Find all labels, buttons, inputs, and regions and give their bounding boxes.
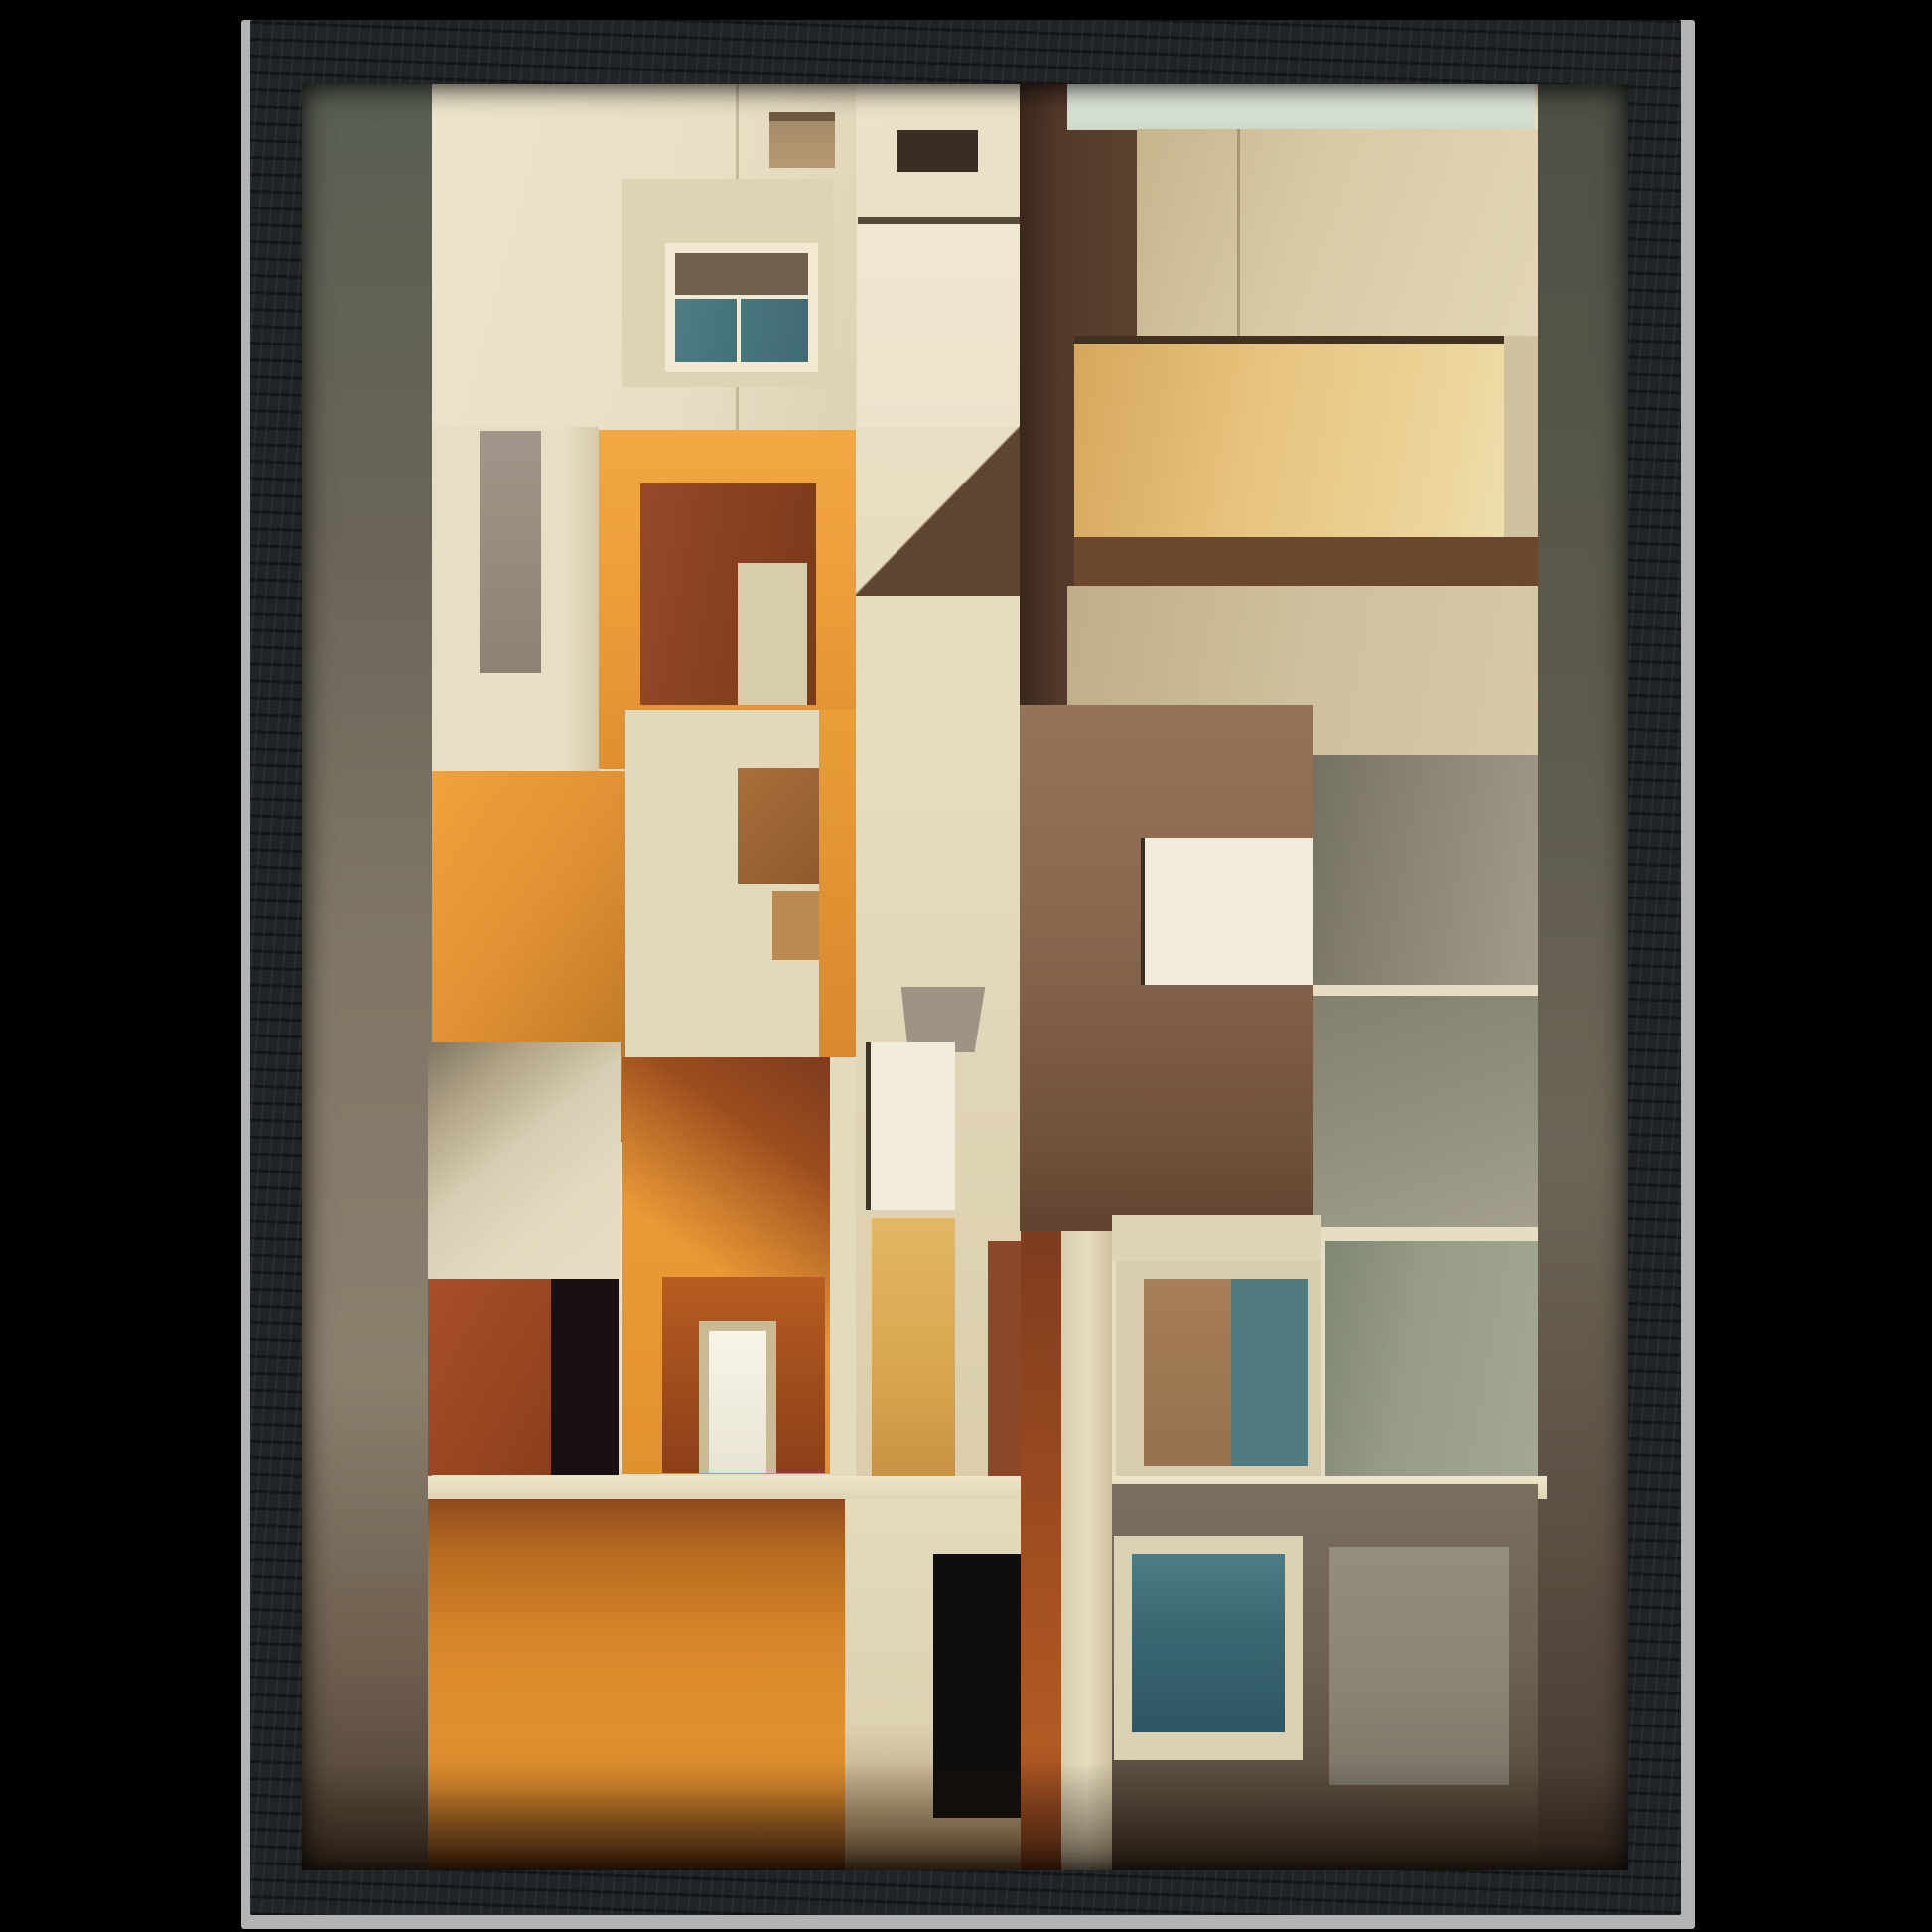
block-yellow-panel [1074,344,1504,537]
block-window-transom [675,253,808,295]
block-blinds-pane-teal [1231,1279,1308,1466]
print [302,84,1628,1870]
picture-frame [250,20,1681,1915]
block-bg-left-wall [302,84,432,1870]
block-blinds-pane-tan [1144,1279,1231,1466]
block-wood-strip [1074,537,1538,586]
block-glass-block-panel [1325,1241,1538,1479]
block-window-pane-right [741,299,808,362]
block-tile-inset-tan [772,891,819,960]
block-gray-square-middle [1313,996,1538,1227]
block-beige-panel [1137,129,1538,337]
block-column-louver-vent [897,130,978,172]
block-wall-notch [769,112,835,168]
block-rust-sliver-column [988,1241,1021,1489]
block-column-niche [858,224,1021,427]
block-recess-brick-pillar [738,563,807,705]
block-door-glass [480,431,541,673]
block-yellow-panel-top-edge [1074,336,1504,344]
block-tile-inset-brown [738,768,819,884]
block-white-panel-right [1145,838,1313,985]
page-background [0,0,1932,1932]
block-beige-panel-seam [1237,129,1240,337]
block-bottom-vignette [302,1762,1628,1870]
block-white-door [709,1331,766,1473]
block-orange-strip-right-of-tiles [819,710,856,1064]
block-bg-right-wall [1538,84,1628,1870]
block-gray-panel-bottom-right [1329,1547,1509,1785]
block-cream-beam-mid [1112,1215,1321,1261]
block-teal-window-pane [1132,1554,1285,1732]
block-column-lintel-line [858,217,1021,224]
block-white-panel-column [871,1042,955,1210]
block-maroon-recess-dark-opening [551,1279,619,1475]
block-column-shadow-wedge [856,425,1023,596]
frame-side-edge [241,20,1695,1929]
block-window-pane-left [675,299,737,362]
block-wood-panel-column [872,1218,955,1478]
block-gray-square-top [1313,755,1538,985]
block-cream-concrete-block [428,1042,621,1279]
block-mint-strip [1067,84,1535,130]
block-tile-grid-panel [625,710,819,1064]
